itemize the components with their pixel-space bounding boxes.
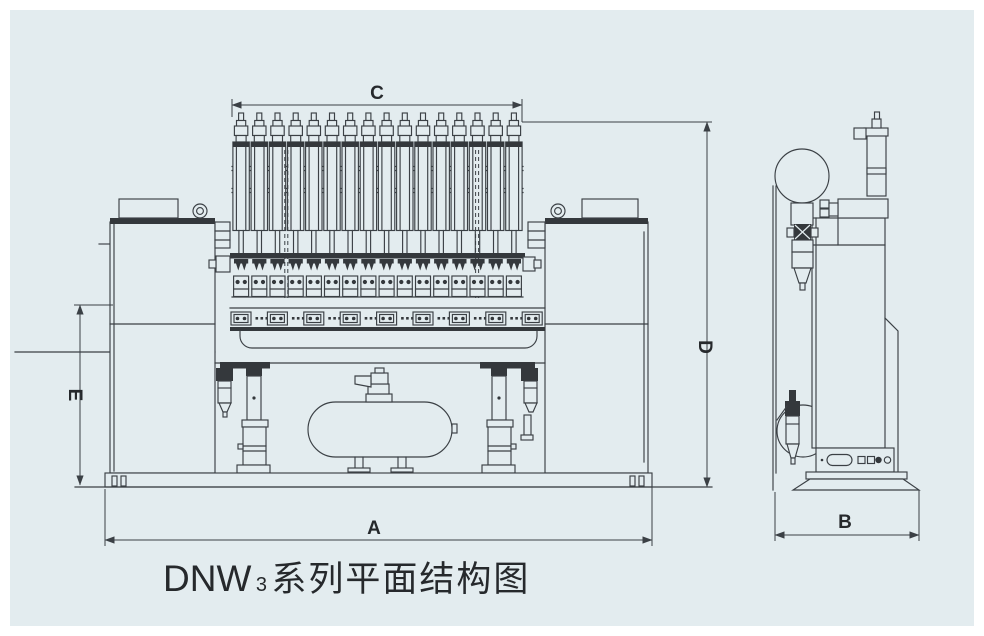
lower-rail-clamp	[231, 312, 251, 325]
caption-model-subscript: 3	[256, 574, 267, 596]
caption-model: DNW	[163, 558, 251, 599]
rail-dot	[515, 317, 518, 320]
dnw3-structure-diagram-page: C D E A B DNW 3 系列平面结构图	[0, 0, 984, 636]
rail-dot	[292, 317, 295, 320]
dim-label-b: B	[838, 512, 852, 533]
rail-dot	[401, 317, 404, 320]
dim-label-c: C	[370, 83, 384, 104]
rail-dot	[333, 317, 336, 320]
right-column-body	[545, 199, 648, 473]
lower-rail-clamp	[449, 312, 469, 325]
left-column-body	[110, 199, 215, 473]
rail-dot	[510, 317, 513, 320]
panel-lamp-filled	[875, 457, 881, 463]
tank-port	[452, 424, 457, 433]
dim-label-e: E	[64, 389, 85, 402]
rail-dot	[479, 317, 482, 320]
lower-rail-clamp	[486, 312, 506, 325]
left-top-box	[119, 199, 178, 218]
caption: DNW 3 系列平面结构图	[163, 558, 530, 599]
lower-clamp-rail	[230, 308, 545, 331]
lower-rail-clamp	[267, 312, 287, 325]
lower-rail-clamp	[304, 312, 324, 325]
rail-dot	[474, 317, 477, 320]
rail-dot	[370, 317, 373, 320]
dnw3-structure-diagram: C D E A B DNW 3 系列平面结构图	[0, 0, 984, 636]
rail-dot	[256, 317, 259, 320]
rail-dot	[297, 317, 300, 320]
dim-label-a: A	[367, 518, 381, 539]
left-clamp-block	[216, 368, 233, 381]
lower-rail-clamp	[522, 312, 542, 325]
panel-dot	[821, 459, 824, 462]
rail-dot	[443, 317, 446, 320]
lower-rail-clamp	[340, 312, 360, 325]
gauge-circle	[775, 149, 829, 203]
caption-series-text: 系列平面结构图	[271, 560, 530, 599]
rail-dot	[261, 317, 264, 320]
front-base	[105, 473, 652, 487]
dim-label-d: D	[694, 340, 715, 354]
electrode-rail	[230, 253, 525, 259]
rail-dot	[328, 317, 331, 320]
rail-dot	[406, 317, 409, 320]
side-body	[812, 218, 885, 448]
right-top-box	[582, 199, 638, 218]
side-base	[793, 472, 919, 490]
lower-rail-clamp	[413, 312, 433, 325]
lower-rail-clamp	[377, 312, 397, 325]
control-panel	[816, 448, 894, 472]
rail-dot	[365, 317, 368, 320]
rail-dot	[438, 317, 441, 320]
right-clamp-block	[521, 368, 538, 381]
